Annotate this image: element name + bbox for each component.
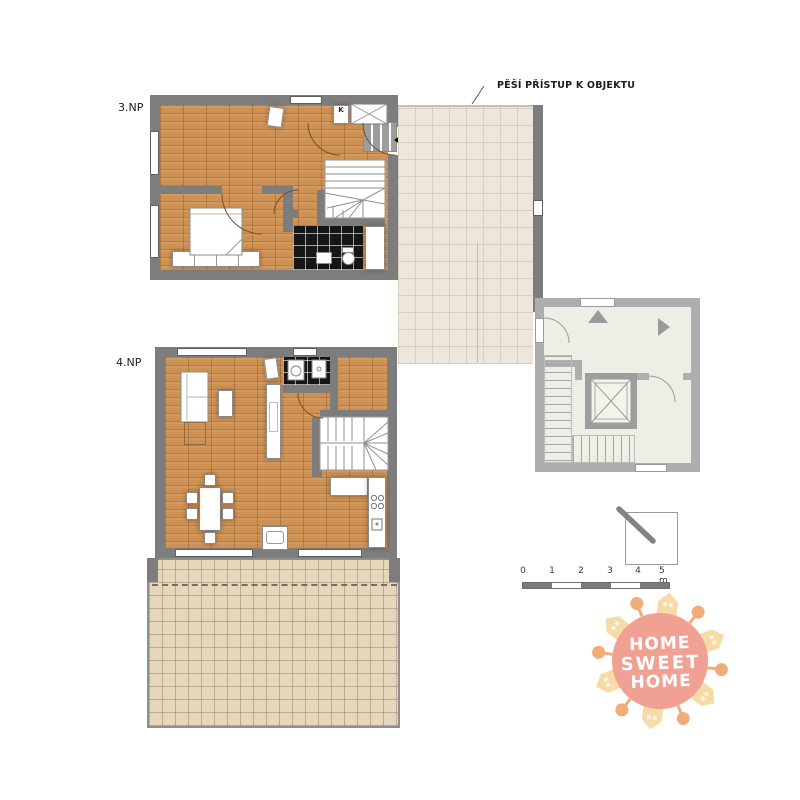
- door-swings-3np: [150, 95, 398, 280]
- terrace: [147, 558, 400, 728]
- logo-text: HOME SWEET HOME: [580, 585, 740, 740]
- floorplan-page: 3.NP 4.NP: [0, 0, 800, 800]
- floor-label-3np: 3.NP: [118, 101, 143, 114]
- walkway-wall-opening: [533, 200, 543, 216]
- terrace-wall-stub-left: [147, 558, 158, 582]
- scale-tick: 1: [549, 566, 555, 576]
- scale-tick: 0: [520, 566, 526, 576]
- access-route-label: PĚŠÍ PŘÍSTUP K OBJEKTU: [497, 80, 635, 91]
- scale-tick: 3: [607, 566, 613, 576]
- floor-label-4np: 4.NP: [116, 356, 141, 369]
- terrace-boundary-dashed-line: [152, 584, 397, 586]
- scale-tick: 4: [635, 566, 641, 576]
- scale-tick: 2: [578, 566, 584, 576]
- fireplace-detail: [266, 531, 284, 544]
- terrace-wall-stub-right: [389, 558, 400, 582]
- logo-line-3: HOME: [630, 671, 692, 692]
- walkway-edge-line: [477, 242, 478, 362]
- home-sweet-home-logo: HOME SWEET HOME: [583, 588, 738, 738]
- door-swings-core: [535, 298, 700, 472]
- access-leader-line: [468, 83, 488, 107]
- access-walkway: [398, 105, 533, 364]
- floorplan-3np: K: [150, 95, 398, 280]
- staircase-core: [535, 298, 700, 472]
- floorplan-4np: [155, 347, 397, 558]
- north-arrow-icon: [617, 504, 687, 574]
